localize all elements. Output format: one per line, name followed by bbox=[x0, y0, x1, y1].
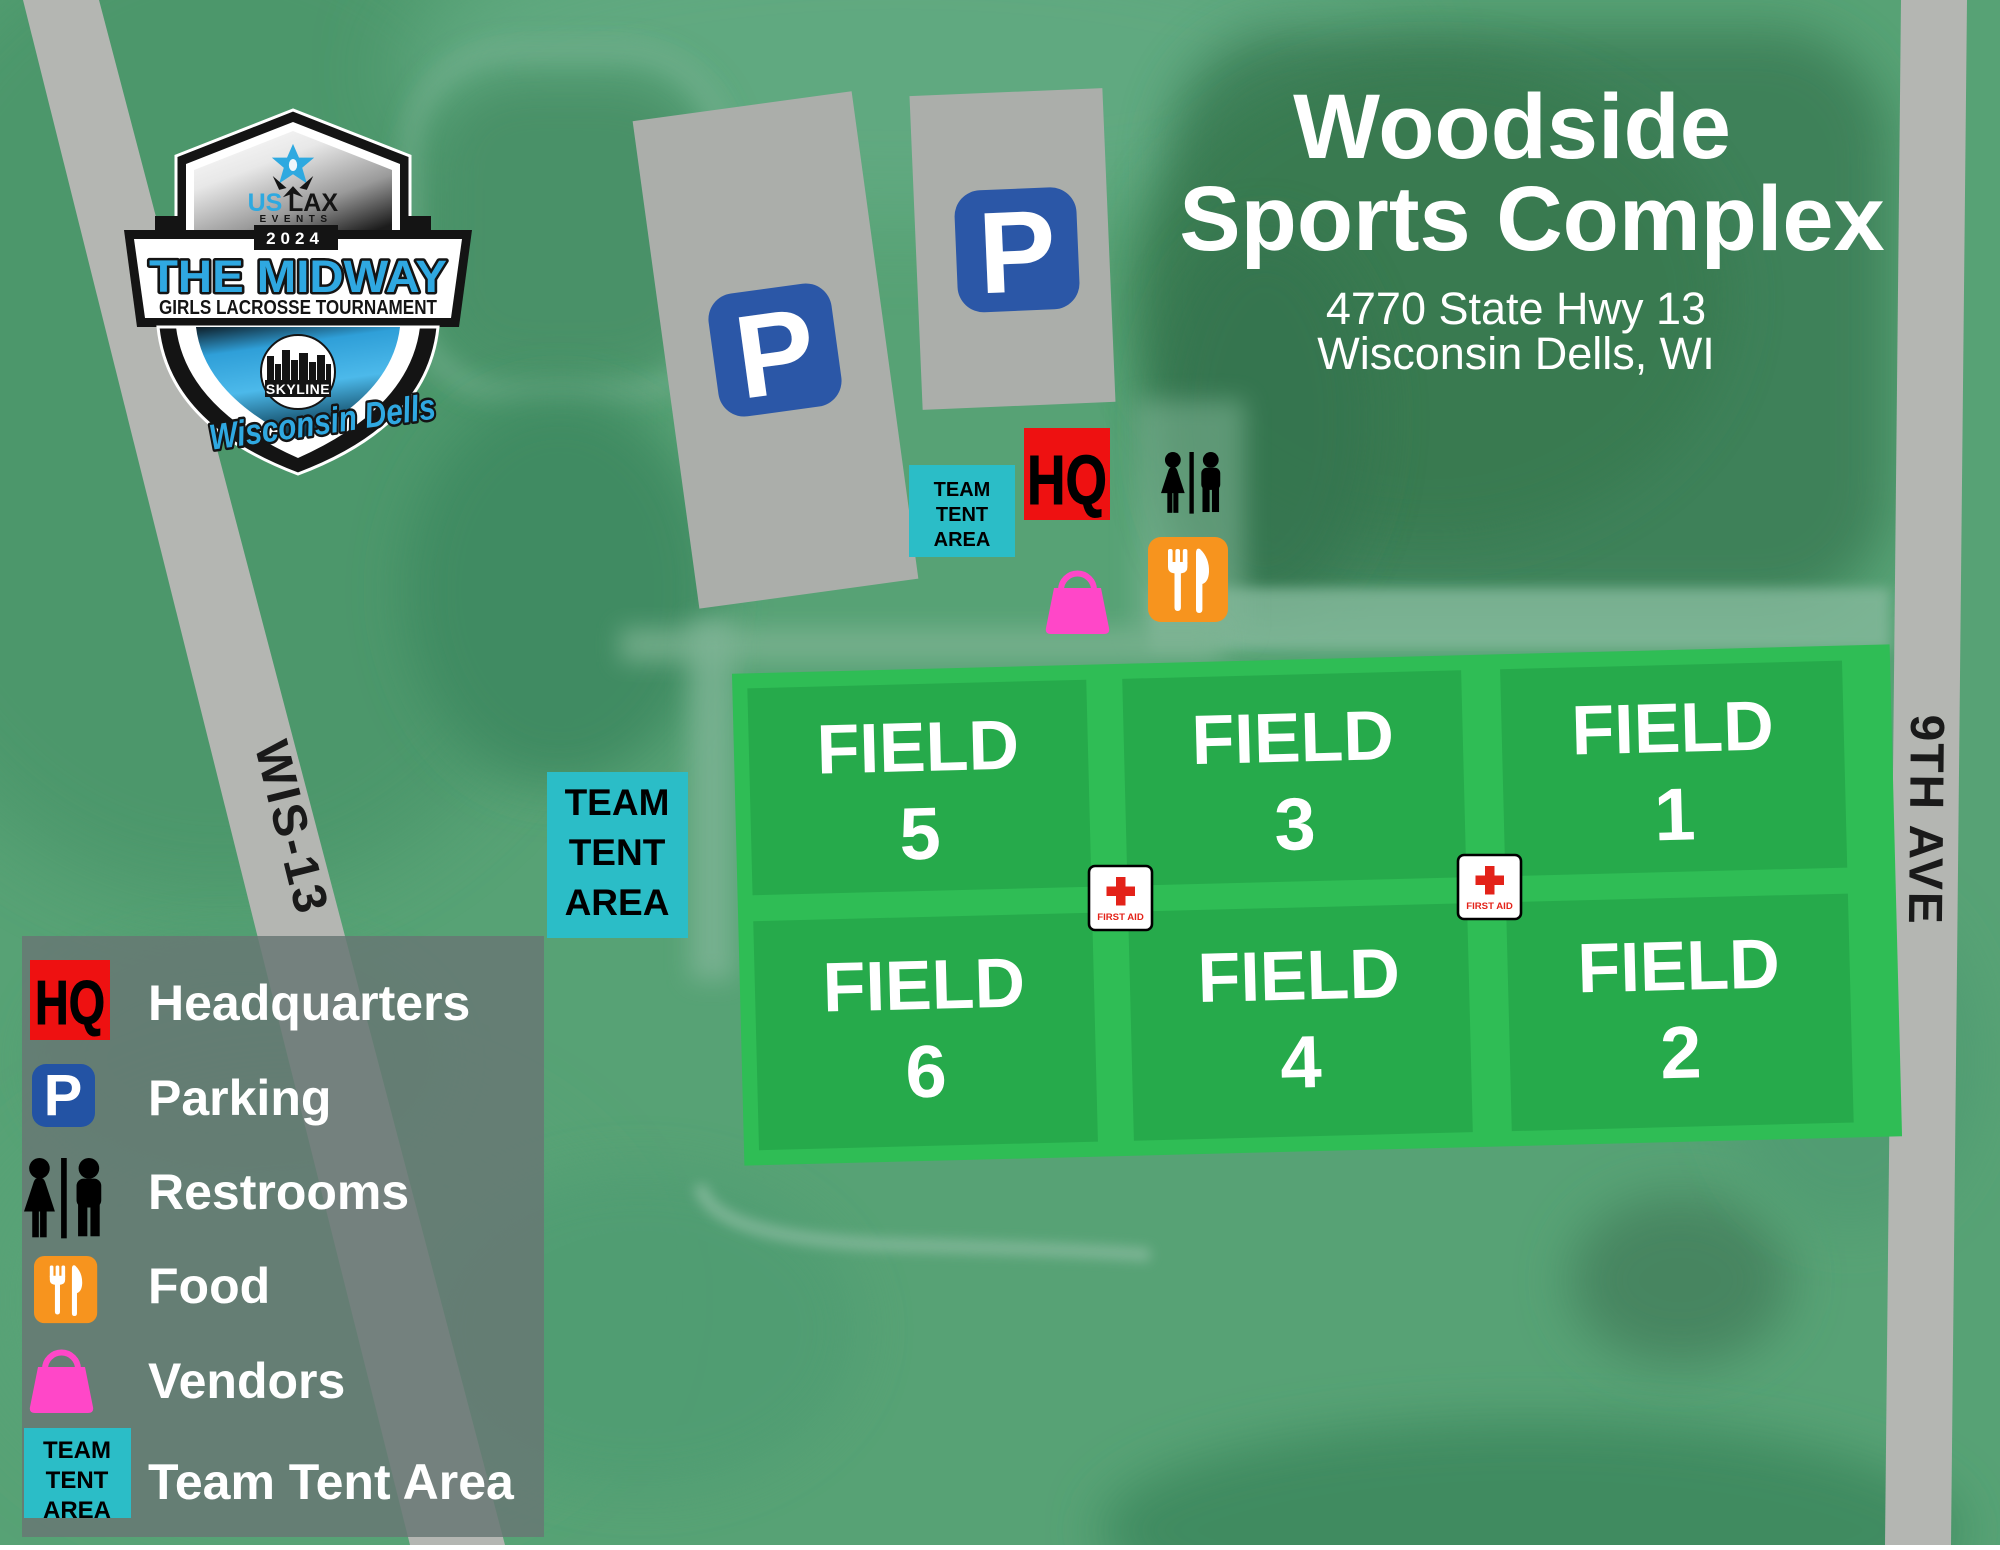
svg-text:FIELD: FIELD bbox=[1197, 934, 1401, 1017]
svg-text:Headquarters: Headquarters bbox=[148, 975, 470, 1031]
svg-text:5: 5 bbox=[898, 792, 941, 876]
svg-text:TEAM: TEAM bbox=[565, 782, 670, 823]
svg-text:FIELD: FIELD bbox=[1571, 686, 1775, 769]
svg-text:Parking: Parking bbox=[148, 1070, 331, 1126]
svg-text:GIRLS LACROSSE TOURNAMENT: GIRLS LACROSSE TOURNAMENT bbox=[159, 297, 437, 319]
svg-text:TENT: TENT bbox=[569, 832, 666, 873]
svg-text:FIELD: FIELD bbox=[816, 706, 1020, 789]
svg-text:1: 1 bbox=[1653, 772, 1696, 856]
svg-text:AREA: AREA bbox=[565, 882, 670, 923]
svg-text:SKYLINE: SKYLINE bbox=[266, 381, 330, 397]
svg-text:TEAM: TEAM bbox=[934, 479, 991, 501]
svg-text:3: 3 bbox=[1273, 782, 1316, 866]
svg-text:4770 State Hwy 13: 4770 State Hwy 13 bbox=[1326, 283, 1706, 334]
svg-text:Sports Complex: Sports Complex bbox=[1179, 168, 1884, 270]
svg-text:4: 4 bbox=[1279, 1020, 1322, 1104]
svg-text:2024: 2024 bbox=[266, 229, 324, 248]
svg-text:AREA: AREA bbox=[934, 529, 991, 551]
svg-text:P: P bbox=[44, 1063, 83, 1128]
svg-text:HQ: HQ bbox=[1027, 441, 1107, 519]
svg-text:TEAM: TEAM bbox=[43, 1437, 111, 1464]
svg-text:TENT: TENT bbox=[936, 504, 988, 526]
svg-text:Team Tent Area: Team Tent Area bbox=[148, 1454, 515, 1510]
svg-text:FIELD: FIELD bbox=[1577, 924, 1781, 1007]
svg-text:LAX: LAX bbox=[288, 189, 338, 217]
svg-text:6: 6 bbox=[904, 1029, 947, 1113]
svg-text:2: 2 bbox=[1659, 1010, 1702, 1094]
svg-text:FIELD: FIELD bbox=[1191, 696, 1395, 779]
svg-text:FIRST AID: FIRST AID bbox=[1097, 912, 1144, 923]
svg-text:HQ: HQ bbox=[35, 969, 105, 1038]
svg-text:US: US bbox=[248, 189, 283, 217]
svg-text:FIRST AID: FIRST AID bbox=[1466, 901, 1513, 912]
svg-text:P: P bbox=[976, 185, 1059, 318]
svg-text:Woodside: Woodside bbox=[1293, 76, 1731, 178]
svg-text:Vendors: Vendors bbox=[148, 1353, 345, 1409]
svg-text:AREA: AREA bbox=[43, 1497, 111, 1524]
svg-text:EVENTS: EVENTS bbox=[259, 214, 332, 225]
svg-text:TENT: TENT bbox=[46, 1467, 109, 1494]
svg-text:Restrooms: Restrooms bbox=[148, 1164, 409, 1220]
svg-text:Food: Food bbox=[148, 1258, 270, 1314]
svg-text:THE MIDWAY: THE MIDWAY bbox=[149, 251, 447, 302]
svg-text:Wisconsin Dells, WI: Wisconsin Dells, WI bbox=[1317, 328, 1715, 379]
svg-text:FIELD: FIELD bbox=[822, 943, 1026, 1026]
svg-text:9TH AVE: 9TH AVE bbox=[1898, 714, 1953, 926]
